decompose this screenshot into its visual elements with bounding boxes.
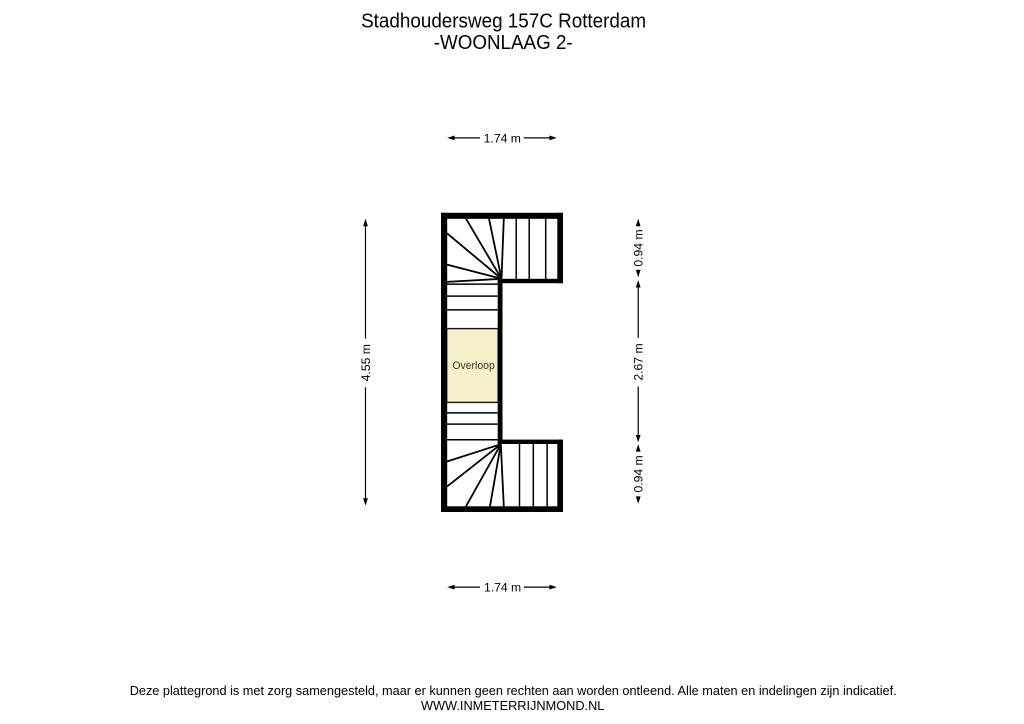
svg-text:0.94 m: 0.94 m bbox=[632, 455, 646, 492]
svg-text:-WOONLAAG 2-: -WOONLAAG 2- bbox=[434, 32, 573, 54]
svg-text:0.94 m: 0.94 m bbox=[632, 229, 646, 266]
svg-text:Overloop: Overloop bbox=[452, 360, 494, 372]
svg-text:Deze plattegrond is met zorg s: Deze plattegrond is met zorg samengestel… bbox=[130, 683, 897, 698]
svg-text:WWW.INMETERRIJNMOND.NL: WWW.INMETERRIJNMOND.NL bbox=[421, 698, 604, 713]
svg-text:1.74 m: 1.74 m bbox=[484, 131, 521, 145]
svg-text:4.55 m: 4.55 m bbox=[359, 344, 373, 381]
svg-text:Stadhoudersweg 157C Rotterdam: Stadhoudersweg 157C Rotterdam bbox=[361, 11, 646, 33]
svg-text:1.74 m: 1.74 m bbox=[484, 580, 521, 594]
svg-text:2.67 m: 2.67 m bbox=[632, 343, 646, 380]
